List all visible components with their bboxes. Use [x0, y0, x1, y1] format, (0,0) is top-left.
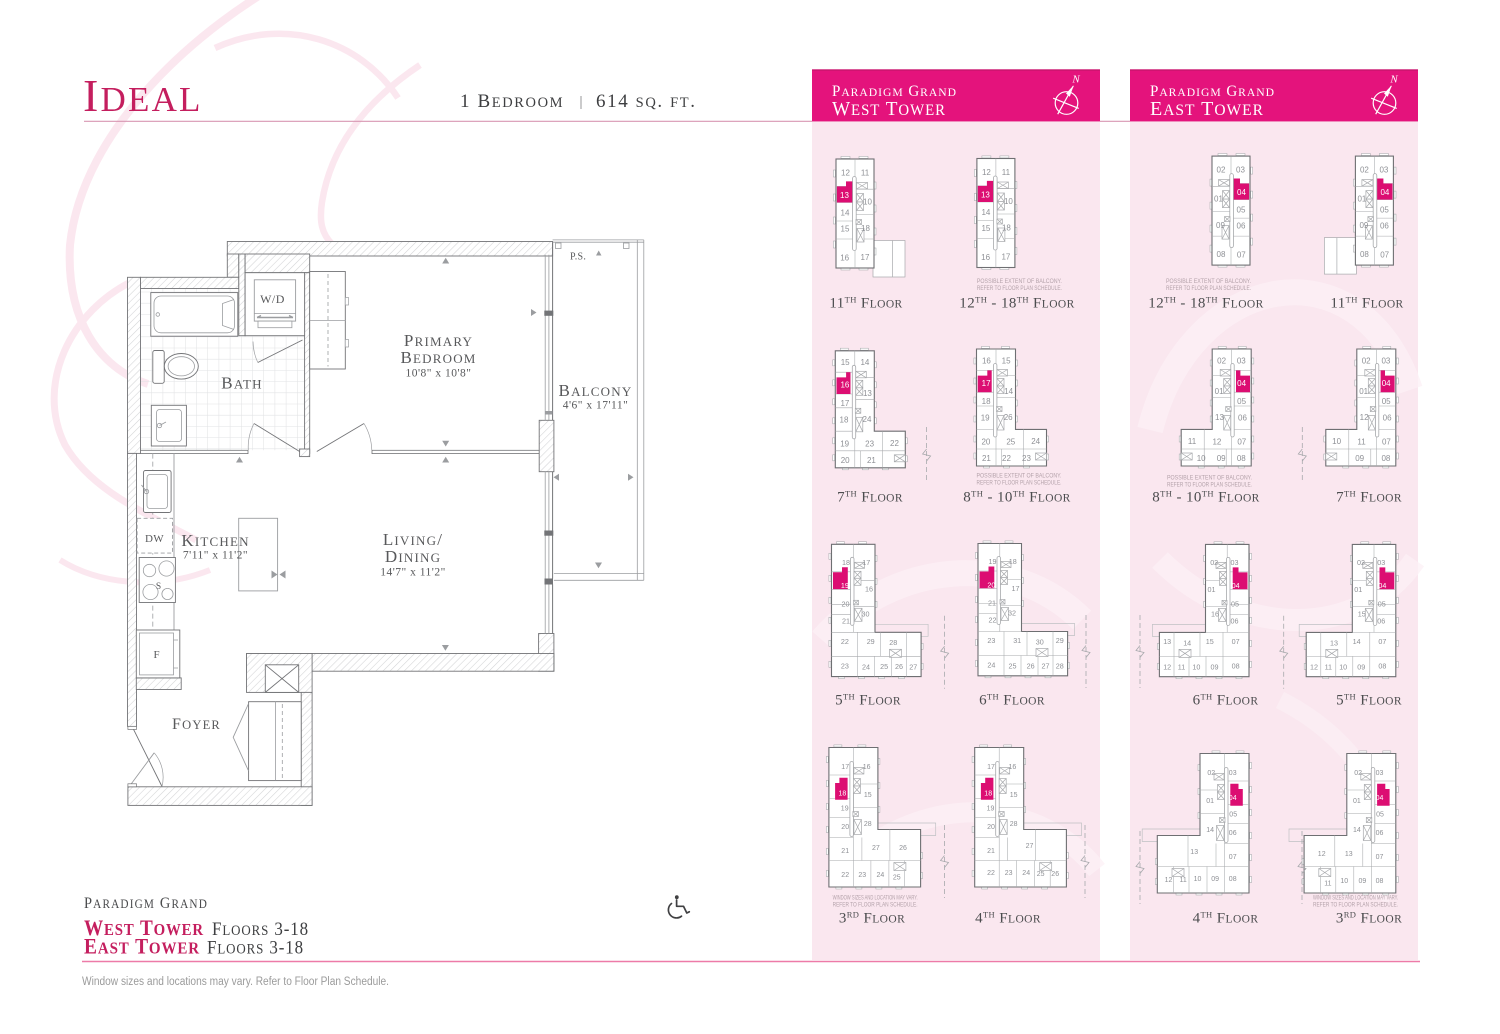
svg-text:29: 29: [867, 637, 875, 646]
svg-text:25: 25: [880, 662, 888, 671]
svg-text:10: 10: [1004, 197, 1013, 206]
svg-text:14: 14: [860, 358, 869, 367]
svg-text:Window sizes and locations may: Window sizes and locations may vary. Ref…: [82, 976, 389, 988]
svg-text:21: 21: [841, 848, 849, 855]
svg-text:04: 04: [1378, 581, 1386, 590]
svg-text:16: 16: [863, 764, 871, 771]
svg-text:12: 12: [1360, 413, 1369, 422]
svg-text:10: 10: [1340, 878, 1348, 885]
svg-text:02: 02: [1357, 558, 1365, 567]
svg-text:|: |: [579, 94, 582, 110]
svg-text:15: 15: [841, 358, 850, 367]
svg-text:09: 09: [1216, 221, 1225, 230]
svg-text:23: 23: [1022, 454, 1031, 463]
svg-text:03: 03: [1236, 165, 1245, 174]
svg-text:FOYER: FOYER: [172, 716, 221, 733]
svg-text:02: 02: [1360, 165, 1369, 174]
svg-text:25: 25: [1037, 871, 1045, 878]
svg-text:11: 11: [861, 168, 870, 177]
svg-text:11: 11: [1188, 437, 1197, 446]
svg-text:30: 30: [1036, 637, 1044, 646]
svg-text:POSSIBLE EXTENT OF BALCONY.: POSSIBLE EXTENT OF BALCONY.: [977, 279, 1062, 285]
svg-text:14: 14: [1353, 637, 1361, 646]
svg-text:10: 10: [1339, 662, 1347, 671]
svg-text:25: 25: [1006, 438, 1015, 447]
svg-text:4'6" x 17'11": 4'6" x 17'11": [563, 400, 629, 412]
svg-text:13: 13: [1190, 849, 1198, 856]
svg-text:05: 05: [1237, 205, 1246, 214]
svg-text:12: 12: [982, 168, 991, 177]
svg-text:02: 02: [1210, 558, 1218, 567]
svg-text:02: 02: [1354, 770, 1362, 777]
svg-text:11: 11: [1179, 877, 1186, 884]
svg-text:BEDROOM: BEDROOM: [400, 348, 476, 367]
svg-text:DW: DW: [145, 533, 164, 545]
svg-text:14: 14: [1004, 387, 1013, 396]
svg-text:WINDOW SIZES AND LOCATION MAY: WINDOW SIZES AND LOCATION MAY VARY.: [1313, 896, 1398, 902]
svg-text:01: 01: [1359, 387, 1368, 396]
svg-text:22: 22: [1002, 454, 1011, 463]
svg-text:12: 12: [1165, 877, 1173, 884]
svg-text:09: 09: [1357, 663, 1365, 672]
svg-text:WINDOW SIZES AND LOCATION MAY: WINDOW SIZES AND LOCATION MAY VARY.: [833, 896, 918, 902]
svg-text:07: 07: [1229, 854, 1237, 861]
svg-text:N: N: [1071, 74, 1080, 86]
svg-text:24: 24: [862, 663, 870, 672]
svg-text:REFER TO FLOOR PLAN SCHEDULE.: REFER TO FLOOR PLAN SCHEDULE.: [833, 903, 918, 909]
svg-text:27: 27: [872, 845, 880, 852]
svg-text:03: 03: [1229, 770, 1237, 777]
svg-text:06: 06: [1231, 617, 1239, 626]
svg-text:16: 16: [865, 585, 873, 594]
svg-text:11: 11: [1178, 662, 1185, 671]
svg-text:19: 19: [987, 805, 995, 812]
svg-text:15: 15: [841, 224, 850, 233]
svg-text:02: 02: [1217, 165, 1226, 174]
svg-text:21: 21: [988, 599, 996, 608]
svg-text:12: 12: [1318, 851, 1326, 858]
svg-text:18: 18: [1002, 223, 1011, 232]
svg-text:09: 09: [1355, 454, 1364, 463]
svg-text:02: 02: [1207, 770, 1215, 777]
svg-text:W/D: W/D: [260, 292, 285, 306]
svg-text:32: 32: [1008, 609, 1016, 618]
svg-text:02: 02: [1217, 356, 1226, 365]
svg-text:06: 06: [1229, 830, 1237, 837]
svg-text:06: 06: [1376, 830, 1384, 837]
svg-text:REFER TO FLOOR PLAN SCHEDULE.: REFER TO FLOOR PLAN SCHEDULE.: [977, 286, 1062, 292]
svg-text:22: 22: [841, 872, 849, 879]
svg-text:19: 19: [841, 581, 849, 590]
svg-text:20: 20: [842, 600, 850, 609]
svg-text:09: 09: [1211, 663, 1219, 672]
svg-text:05: 05: [1380, 205, 1389, 214]
svg-text:01: 01: [1354, 585, 1362, 594]
svg-text:P.S.: P.S.: [570, 252, 586, 263]
svg-text:06: 06: [1380, 221, 1389, 230]
svg-text:07: 07: [1237, 250, 1246, 259]
svg-text:11: 11: [1324, 881, 1331, 888]
svg-text:13: 13: [1215, 413, 1224, 422]
svg-text:08: 08: [1217, 250, 1226, 259]
svg-text:20: 20: [987, 824, 995, 831]
svg-text:26: 26: [895, 662, 903, 671]
svg-text:26: 26: [1027, 661, 1035, 670]
svg-text:17: 17: [987, 764, 995, 771]
svg-text:23: 23: [987, 636, 995, 645]
svg-text:22: 22: [890, 439, 899, 448]
svg-text:05: 05: [1237, 397, 1246, 406]
svg-text:19: 19: [840, 439, 849, 448]
svg-text:KITCHEN: KITCHEN: [181, 531, 249, 550]
svg-text:24: 24: [863, 415, 872, 424]
svg-text:18: 18: [839, 791, 847, 798]
svg-text:17: 17: [840, 399, 849, 408]
svg-text:13: 13: [981, 190, 990, 199]
svg-text:03: 03: [1237, 356, 1246, 365]
svg-text:05: 05: [1229, 811, 1237, 818]
svg-text:23: 23: [865, 439, 874, 448]
svg-text:614 SQ. FT.: 614 SQ. FT.: [596, 91, 697, 112]
svg-text:16: 16: [1211, 610, 1219, 619]
svg-text:N: N: [1389, 74, 1398, 86]
svg-text:04: 04: [1237, 188, 1246, 197]
svg-text:16: 16: [981, 253, 990, 262]
svg-text:08: 08: [1232, 661, 1240, 670]
svg-text:29: 29: [1056, 636, 1064, 645]
svg-text:S: S: [156, 582, 161, 592]
svg-text:04: 04: [1232, 581, 1240, 590]
svg-text:01: 01: [1206, 798, 1214, 805]
svg-text:15: 15: [1002, 356, 1011, 365]
svg-text:04: 04: [1380, 188, 1389, 197]
svg-text:18: 18: [984, 791, 992, 798]
svg-text:15: 15: [1206, 637, 1214, 646]
svg-text:27: 27: [909, 663, 917, 672]
svg-text:PRIMARY: PRIMARY: [404, 331, 473, 350]
svg-text:03: 03: [1381, 356, 1390, 365]
svg-text:19: 19: [841, 805, 849, 812]
svg-text:31: 31: [1013, 636, 1021, 645]
svg-text:13: 13: [1163, 637, 1171, 646]
svg-text:08: 08: [1237, 454, 1246, 463]
svg-text:04: 04: [1229, 795, 1237, 802]
svg-text:26: 26: [899, 845, 907, 852]
svg-text:EAST TOWER: EAST TOWER: [1150, 98, 1264, 120]
svg-text:06: 06: [1383, 414, 1392, 423]
svg-text:16: 16: [840, 253, 849, 262]
svg-text:24: 24: [1022, 870, 1030, 877]
svg-text:26: 26: [1004, 413, 1013, 422]
svg-text:28: 28: [889, 638, 897, 647]
svg-text:09: 09: [1211, 876, 1219, 883]
svg-text:07: 07: [1232, 637, 1240, 646]
svg-text:23: 23: [841, 661, 849, 670]
svg-text:7'11" x 11'2": 7'11" x 11'2": [183, 550, 248, 562]
svg-text:07: 07: [1237, 438, 1246, 447]
svg-text:25: 25: [893, 875, 901, 882]
svg-text:10'8" x 10'8": 10'8" x 10'8": [405, 368, 471, 380]
svg-text:23: 23: [1005, 870, 1013, 877]
svg-text:10: 10: [1194, 876, 1202, 883]
svg-text:13: 13: [1345, 851, 1353, 858]
svg-text:17: 17: [1001, 252, 1010, 261]
svg-text:28: 28: [864, 821, 872, 828]
svg-text:16: 16: [1009, 764, 1017, 771]
svg-text:11: 11: [1357, 438, 1366, 447]
svg-text:08: 08: [1229, 876, 1237, 883]
svg-text:21: 21: [842, 616, 850, 625]
svg-text:30: 30: [862, 610, 870, 619]
svg-text:F: F: [153, 649, 159, 661]
svg-text:06: 06: [1237, 221, 1246, 230]
svg-text:14: 14: [841, 208, 850, 217]
svg-text:27: 27: [1042, 661, 1050, 670]
svg-text:12: 12: [841, 168, 850, 177]
svg-text:01: 01: [1215, 387, 1224, 396]
svg-text:08: 08: [1381, 454, 1390, 463]
svg-text:15: 15: [1358, 610, 1366, 619]
svg-text:16: 16: [840, 381, 849, 390]
svg-text:01: 01: [1357, 194, 1366, 203]
svg-text:12: 12: [1163, 663, 1171, 672]
svg-text:22: 22: [987, 870, 995, 877]
svg-text:26: 26: [1051, 871, 1059, 878]
svg-text:REFER TO FLOOR PLAN SCHEDULE.: REFER TO FLOOR PLAN SCHEDULE.: [1166, 286, 1251, 292]
svg-text:04: 04: [1376, 795, 1384, 802]
svg-text:05: 05: [1231, 600, 1239, 609]
svg-text:17: 17: [861, 253, 870, 262]
svg-text:20: 20: [841, 456, 850, 465]
svg-text:05: 05: [1376, 811, 1384, 818]
svg-text:10: 10: [1197, 454, 1206, 463]
svg-text:14: 14: [1183, 638, 1191, 647]
svg-text:01: 01: [1353, 798, 1361, 805]
svg-text:20: 20: [841, 824, 849, 831]
svg-text:14: 14: [1206, 827, 1214, 834]
svg-text:DINING: DINING: [385, 547, 441, 566]
svg-text:24: 24: [987, 661, 995, 670]
svg-text:24: 24: [877, 872, 885, 879]
svg-text:18: 18: [982, 397, 991, 406]
svg-text:09: 09: [1217, 454, 1226, 463]
svg-text:08: 08: [1360, 250, 1369, 259]
svg-text:11: 11: [1325, 662, 1332, 671]
svg-text:17: 17: [982, 379, 991, 388]
svg-text:23: 23: [858, 872, 866, 879]
svg-text:REFER TO FLOOR PLAN SCHEDULE.: REFER TO FLOOR PLAN SCHEDULE.: [977, 481, 1062, 487]
svg-text:18: 18: [1009, 557, 1017, 566]
svg-text:12: 12: [1212, 438, 1221, 447]
svg-text:05: 05: [1382, 397, 1391, 406]
svg-text:13: 13: [840, 191, 849, 200]
svg-text:20: 20: [981, 438, 990, 447]
svg-text:18: 18: [861, 224, 870, 233]
svg-text:04: 04: [1382, 379, 1391, 388]
svg-text:REFER TO FLOOR PLAN SCHEDULE.: REFER TO FLOOR PLAN SCHEDULE.: [1313, 903, 1398, 909]
svg-text:24: 24: [1031, 437, 1040, 446]
svg-text:22: 22: [989, 616, 997, 625]
svg-text:02: 02: [1362, 356, 1371, 365]
svg-text:17: 17: [1012, 584, 1020, 593]
svg-text:BALCONY: BALCONY: [559, 381, 633, 400]
svg-text:14'7" x 11'2": 14'7" x 11'2": [380, 567, 446, 579]
svg-text:17: 17: [841, 764, 849, 771]
svg-text:09: 09: [1359, 221, 1368, 230]
svg-text:01: 01: [1214, 194, 1223, 203]
svg-text:14: 14: [1353, 827, 1361, 834]
svg-text:21: 21: [987, 848, 995, 855]
svg-text:20: 20: [987, 580, 995, 589]
svg-text:03: 03: [1376, 770, 1384, 777]
svg-text:16: 16: [982, 356, 991, 365]
svg-text:07: 07: [1376, 854, 1384, 861]
svg-text:06: 06: [1377, 617, 1385, 626]
svg-text:07: 07: [1378, 637, 1386, 646]
svg-text:21: 21: [867, 456, 876, 465]
svg-text:27: 27: [1026, 843, 1034, 850]
svg-text:POSSIBLE EXTENT OF BALCONY.: POSSIBLE EXTENT OF BALCONY.: [1166, 279, 1251, 285]
svg-text:08: 08: [1376, 878, 1384, 885]
svg-text:03: 03: [1231, 558, 1239, 567]
svg-text:POSSIBLE EXTENT OF BALCONY.: POSSIBLE EXTENT OF BALCONY.: [977, 474, 1062, 480]
svg-text:WEST TOWER: WEST TOWER: [832, 98, 946, 120]
svg-text:15: 15: [981, 224, 990, 233]
svg-text:03: 03: [1379, 165, 1388, 174]
svg-text:28: 28: [1010, 821, 1018, 828]
svg-text:09: 09: [1359, 878, 1367, 885]
svg-text:19: 19: [981, 414, 990, 423]
svg-text:12: 12: [1310, 663, 1318, 672]
svg-text:25: 25: [1009, 662, 1017, 671]
svg-text:10: 10: [1192, 662, 1200, 671]
svg-text:15: 15: [864, 792, 872, 799]
svg-text:03: 03: [1377, 558, 1385, 567]
svg-text:FLOORS 3-18: FLOORS 3-18: [207, 938, 304, 959]
svg-text:18: 18: [842, 558, 850, 567]
svg-text:08: 08: [1378, 661, 1386, 670]
svg-text:07: 07: [1382, 438, 1391, 447]
svg-text:28: 28: [1056, 662, 1064, 671]
svg-text:1 BEDROOM: 1 BEDROOM: [460, 91, 564, 112]
svg-text:13: 13: [1330, 638, 1338, 647]
svg-text:14: 14: [981, 208, 990, 217]
svg-text:10: 10: [1332, 437, 1341, 446]
svg-text:06: 06: [1238, 414, 1247, 423]
svg-text:18: 18: [840, 416, 849, 425]
svg-text:11: 11: [1002, 168, 1011, 177]
svg-text:10: 10: [863, 197, 872, 206]
svg-text:05: 05: [1378, 600, 1386, 609]
svg-text:BATH: BATH: [221, 374, 262, 393]
svg-text:POSSIBLE EXTENT OF BALCONY.: POSSIBLE EXTENT OF BALCONY.: [1167, 476, 1252, 482]
svg-text:19: 19: [989, 557, 997, 566]
svg-text:15: 15: [1010, 792, 1018, 799]
svg-text:21: 21: [982, 454, 991, 463]
svg-text:04: 04: [1237, 379, 1246, 388]
svg-text:07: 07: [1380, 250, 1389, 259]
svg-text:PARADIGM GRAND: PARADIGM GRAND: [84, 895, 208, 912]
svg-text:22: 22: [841, 637, 849, 646]
svg-text:17: 17: [862, 558, 870, 567]
svg-text:01: 01: [1208, 585, 1216, 594]
svg-text:13: 13: [863, 389, 872, 398]
